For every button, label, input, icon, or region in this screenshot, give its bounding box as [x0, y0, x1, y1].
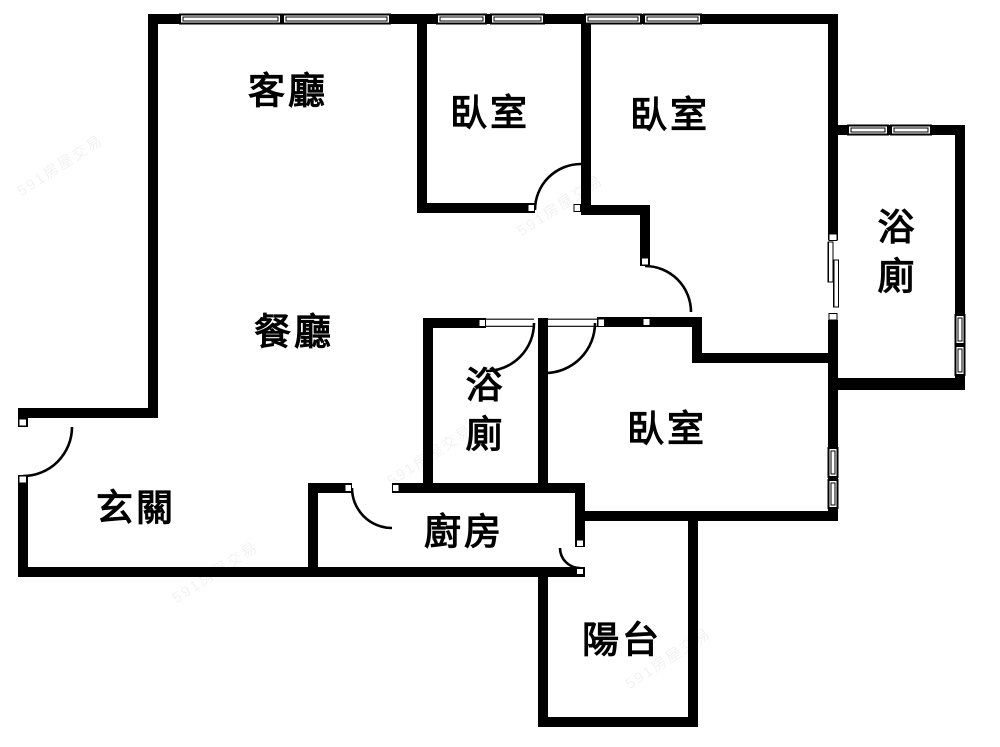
window-icon	[829, 480, 838, 508]
window-icon	[437, 15, 486, 24]
window-icon	[644, 15, 701, 24]
window-icon	[848, 126, 888, 135]
kitchen-door-swing-icon	[352, 488, 392, 528]
room-label-bedroom2: 臥室	[630, 97, 710, 134]
room-label-living: 客廳	[248, 73, 328, 110]
window-icon	[956, 315, 965, 344]
entry-door-swing-icon	[23, 427, 72, 476]
window-icon	[956, 346, 965, 375]
balcony-door-swing-icon	[560, 548, 580, 568]
floor-plan: 客廳 臥室 臥室 浴廁 餐廳 浴廁 臥室 玄關 廚房 陽台 591房屋交易 59…	[0, 0, 1000, 747]
window-icon	[180, 15, 281, 24]
window-icon	[829, 448, 838, 477]
room-label-bathroom1: 浴廁	[875, 204, 917, 302]
bedroom2-door-swing-icon	[645, 266, 691, 312]
room-label-bedroom3: 臥室	[627, 411, 707, 448]
bedroom3-door-swing-icon	[545, 323, 595, 373]
sliding-door-icon	[828, 242, 838, 307]
room-label-kitchen: 廚房	[424, 514, 504, 551]
bedroom1-door-swing-icon	[535, 164, 581, 210]
room-label-bathroom2: 浴廁	[463, 362, 505, 460]
room-label-dining: 餐廳	[254, 314, 334, 351]
room-label-balcony: 陽台	[582, 622, 662, 659]
room-label-entry: 玄關	[96, 490, 176, 527]
window-icon	[491, 15, 544, 24]
window-icon	[585, 15, 641, 24]
window-icon	[891, 126, 931, 135]
window-icon	[283, 15, 390, 24]
room-label-bedroom1: 臥室	[450, 95, 530, 132]
